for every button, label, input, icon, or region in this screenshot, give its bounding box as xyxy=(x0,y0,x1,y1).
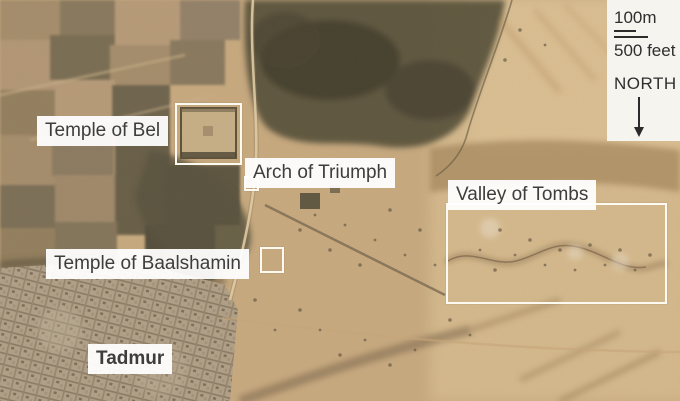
temple-of-bel-highlight-box xyxy=(175,103,242,165)
satellite-map: Temple of Bel Arch of Triumph Temple of … xyxy=(0,0,680,401)
scale-bar-500feet xyxy=(614,36,648,38)
label-temple-of-bel: Temple of Bel xyxy=(37,116,168,146)
label-arch-of-triumph: Arch of Triumph xyxy=(245,158,395,188)
north-arrow-icon xyxy=(633,97,645,137)
label-tadmur: Tadmur xyxy=(88,344,172,374)
scale-bar-100m xyxy=(614,30,636,32)
scale-metric-label: 100m xyxy=(614,9,680,26)
label-valley-of-tombs: Valley of Tombs xyxy=(448,180,596,210)
north-label: NORTH xyxy=(614,75,680,92)
scale-imperial-label: 500 feet xyxy=(614,42,680,59)
valley-of-tombs-highlight-box xyxy=(446,203,667,304)
label-temple-of-baalshamin: Temple of Baalshamin xyxy=(46,249,249,279)
temple-of-baalshamin-highlight-box xyxy=(260,247,284,273)
scale-north-panel: 100m 500 feet NORTH xyxy=(607,0,680,141)
